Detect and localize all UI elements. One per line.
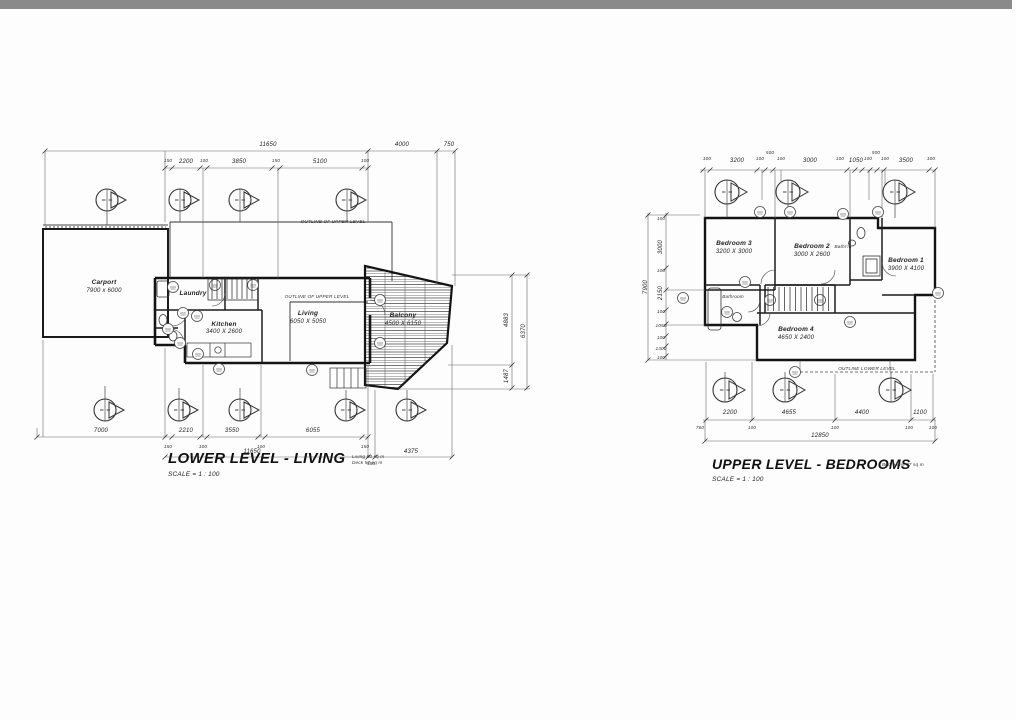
reference-tag-icon [175,338,186,349]
drawing-symbols [35,149,944,460]
area-note: Bedrooms 87 sq m [882,463,924,468]
grid-marker-icon [715,180,747,218]
grid-marker-icon [168,388,198,421]
dim-label: 1487 [504,369,510,383]
room-size-bedroom2: 3000 X 2600 [794,252,830,258]
dim-label: 500 [872,151,880,156]
reference-tag-icon [790,367,801,378]
grid-marker-icon [229,388,259,421]
deck-steps [330,368,366,388]
dim-label: 100 [836,157,844,162]
reference-tag-icon [785,207,796,218]
plan-title-upper: UPPER LEVEL - BEDROOMS [712,456,910,472]
dim-label: 100 [657,336,665,341]
room-label-carport: Carport [92,280,117,287]
dim-label: 4655 [782,410,796,416]
drawing-sheet: 11650 4000 750 150 2200 100 3850 150 510… [0,0,1016,720]
grid-marker-icon [94,386,124,421]
dim-label: 100 [748,426,756,431]
dim-label: 5100 [313,159,327,165]
room-label-bathroom2: Bathr'm [834,245,851,250]
reference-tag-icon [168,282,179,293]
dim-label: 3200 [730,158,744,164]
reference-tag-icon [722,307,733,318]
grid-marker-icon [773,372,805,402]
room-label-bedroom4: Bedroom 4 [778,327,814,334]
reference-tag-icon [815,295,826,306]
dim-label: 6055 [306,428,320,434]
reference-tag-icon [873,207,884,218]
deck-outline [365,266,452,389]
reference-tag-icon [214,364,225,375]
dim-label: 1050 [655,324,666,329]
room-label-bathroom: Bathroom [722,295,744,300]
note-lower-outline: OUTLINE LOWER LEVEL [838,367,896,372]
door-swings-upper [748,262,896,326]
dim-label: 150 [164,445,172,450]
dim-label: 100 [881,157,889,162]
reference-tag-icon [193,349,204,360]
dim-label: 3000 [658,240,664,254]
upper-interior-walls [705,218,915,325]
reference-tag-icon [375,295,386,306]
reference-tag-icon [838,209,849,220]
dim-label: 100 [200,159,208,164]
room-size-kitchen: 3400 X 2600 [206,329,242,335]
dim-label: 100 [929,426,937,431]
dim-label: 3000 [803,158,817,164]
note-upper-outline: OUTLINE OF UPPER LEVEL [285,295,350,300]
dim-label: 1100 [913,410,927,416]
dim-label: 150 [164,159,172,164]
reference-tag-icon [210,280,221,291]
room-size-balcony: 4500 X 6150 [385,321,421,327]
dim-label: 3500 [899,158,913,164]
room-label-bedroom2: Bedroom 2 [794,244,830,251]
reference-tag-icon [755,207,766,218]
dim-label: 2150 [658,286,664,300]
reference-tag-icon [375,338,386,349]
room-size-living: 6050 X 5050 [290,319,326,325]
grid-marker-icon [879,372,911,402]
room-size-bedroom1: 3900 X 4100 [888,266,924,272]
dim-label: 100 [657,356,665,361]
reference-tag-icon [192,311,203,322]
dim-label: 150 [272,159,280,164]
dim-label: 4375 [404,449,418,455]
dim-label: 100 [927,157,935,162]
room-size-bedroom3: 3200 X 3000 [716,249,752,255]
reference-tag-icon [845,317,856,328]
plan-linework [0,0,1016,720]
dim-label: 7000 [94,428,108,434]
reference-tag-icon [248,280,259,291]
grid-marker-icon [336,189,366,222]
reference-tag-icon [163,324,174,335]
dim-label: 4400 [855,410,869,416]
dim-label: 750 [444,142,455,148]
dim-label: 100 [756,157,764,162]
dim-label: 3850 [232,159,246,165]
grid-marker-icon [335,390,365,421]
grid-marker-icon [883,180,915,218]
scale-note-upper: SCALE = 1 : 100 [712,477,764,484]
reference-tag-icon [307,365,318,376]
dim-label: 100 [657,310,665,315]
reference-tag-icon [740,277,751,288]
grid-marker-icon [169,189,199,222]
reference-tag-icon [678,293,689,304]
dim-label: 100 [831,426,839,431]
dim-label: 11650 [259,142,276,148]
dim-label: 1300 [655,347,666,352]
dim-label: 150 [361,445,369,450]
dim-label: 4000 [395,142,409,148]
dim-label: 3550 [225,428,239,434]
dim-label: 1050 [849,158,863,164]
plan-title-lower: LOWER LEVEL - LIVING [168,450,345,467]
reference-tag-icon [933,288,944,299]
scale-note-lower: SCALE = 1 : 100 [168,472,220,479]
dim-label: 100 [864,157,872,162]
dim-label: 100 [905,426,913,431]
dim-label: 2210 [179,428,193,434]
room-label-bedroom1: Bedroom 1 [888,258,924,265]
room-label-bedroom3: Bedroom 3 [716,241,752,248]
area-note: Living 50 sq m [352,455,384,460]
grid-marker-icon [229,189,259,222]
dim-label: 100 [361,159,369,164]
dim-label: 500 [766,151,774,156]
dim-label: 2200 [179,159,193,165]
area-note: Deck 57 sq m [352,461,382,466]
dim-label: 100 [657,269,665,274]
grid-marker-icon [96,189,126,225]
dim-label: 100 [199,445,207,450]
room-size-carport: 7900 x 6000 [86,288,121,294]
note-upper-outline: OUTLINE OF UPPER LEVEL [301,220,366,225]
dim-label: 2200 [723,410,737,416]
dim-label: 7900 [643,280,649,294]
room-label-balcony: Balcony [390,313,417,320]
room-size-bedroom4: 4650 X 2400 [778,335,814,341]
grid-marker-icon [396,390,426,421]
room-label-kitchen: Kitchen [211,322,236,329]
dim-label: 12850 [811,433,829,439]
room-label-living: Living [298,311,318,318]
reference-tag-icon [178,308,189,319]
grid-marker-icon [713,372,745,402]
dim-label: 100 [777,157,785,162]
dim-label: 100 [703,157,711,162]
dim-label: 6370 [521,324,527,338]
room-label-laundry: Laundry [179,291,206,298]
dim-label: 100 [657,217,665,222]
dim-label: 760 [696,426,704,431]
dim-label: 4883 [504,313,510,327]
